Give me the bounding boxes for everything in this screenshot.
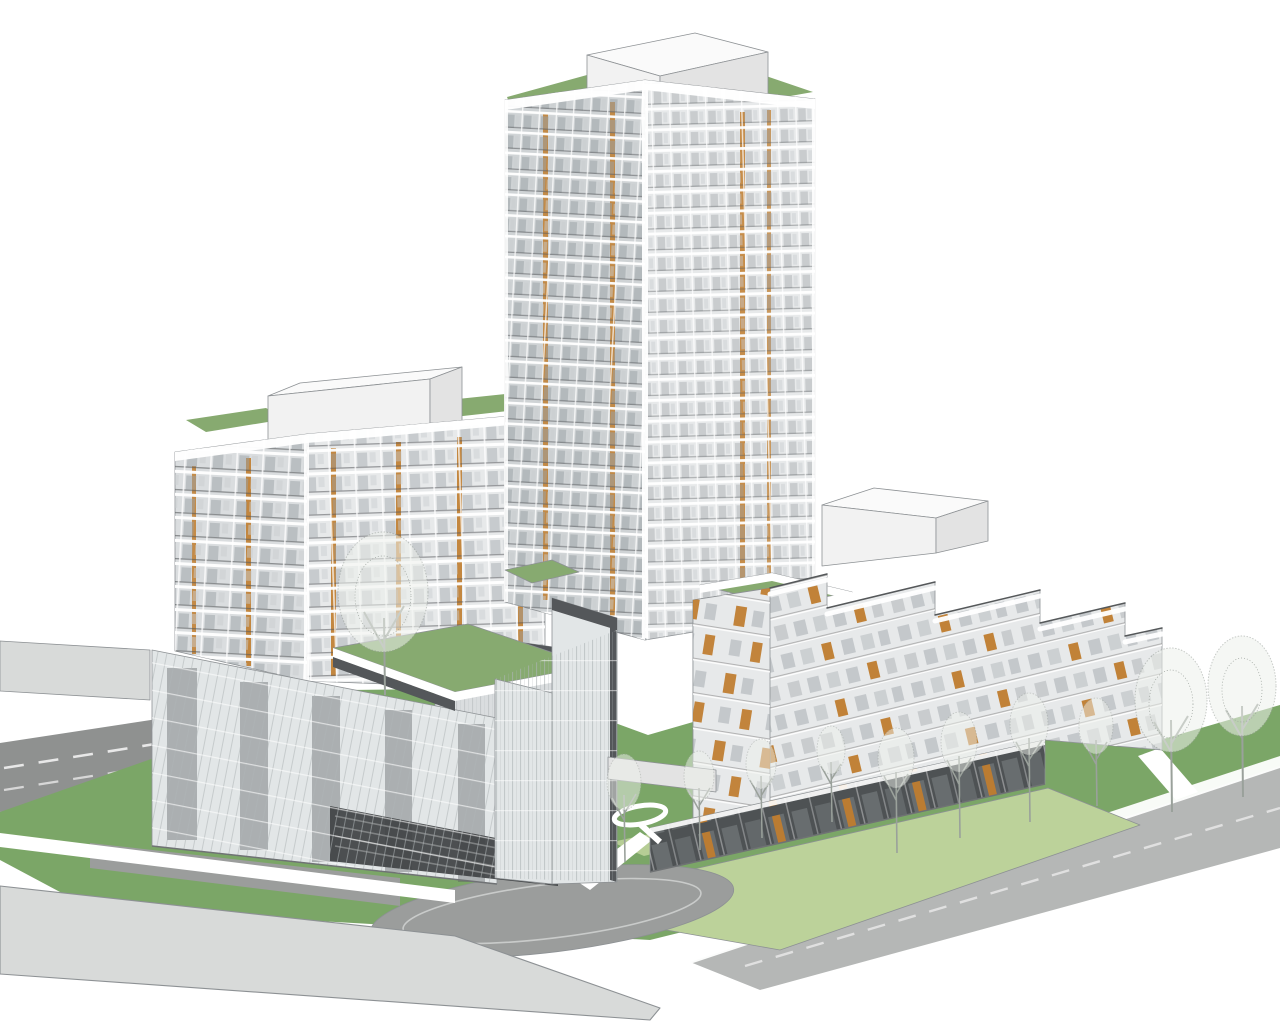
architectural-rendering xyxy=(0,0,1280,1026)
corner-pier xyxy=(304,436,309,682)
tower-facade-grid xyxy=(645,80,815,640)
corner-pier xyxy=(642,84,648,638)
rendering-canvas xyxy=(0,0,1280,1026)
facade-grid xyxy=(175,434,307,681)
edge-pier xyxy=(812,99,816,612)
edge-pier xyxy=(504,100,508,602)
mechanical-penthouse xyxy=(822,488,988,566)
tower-facade-grid xyxy=(505,80,645,640)
central-tower-building xyxy=(504,33,816,640)
west-road-stub xyxy=(0,641,150,700)
